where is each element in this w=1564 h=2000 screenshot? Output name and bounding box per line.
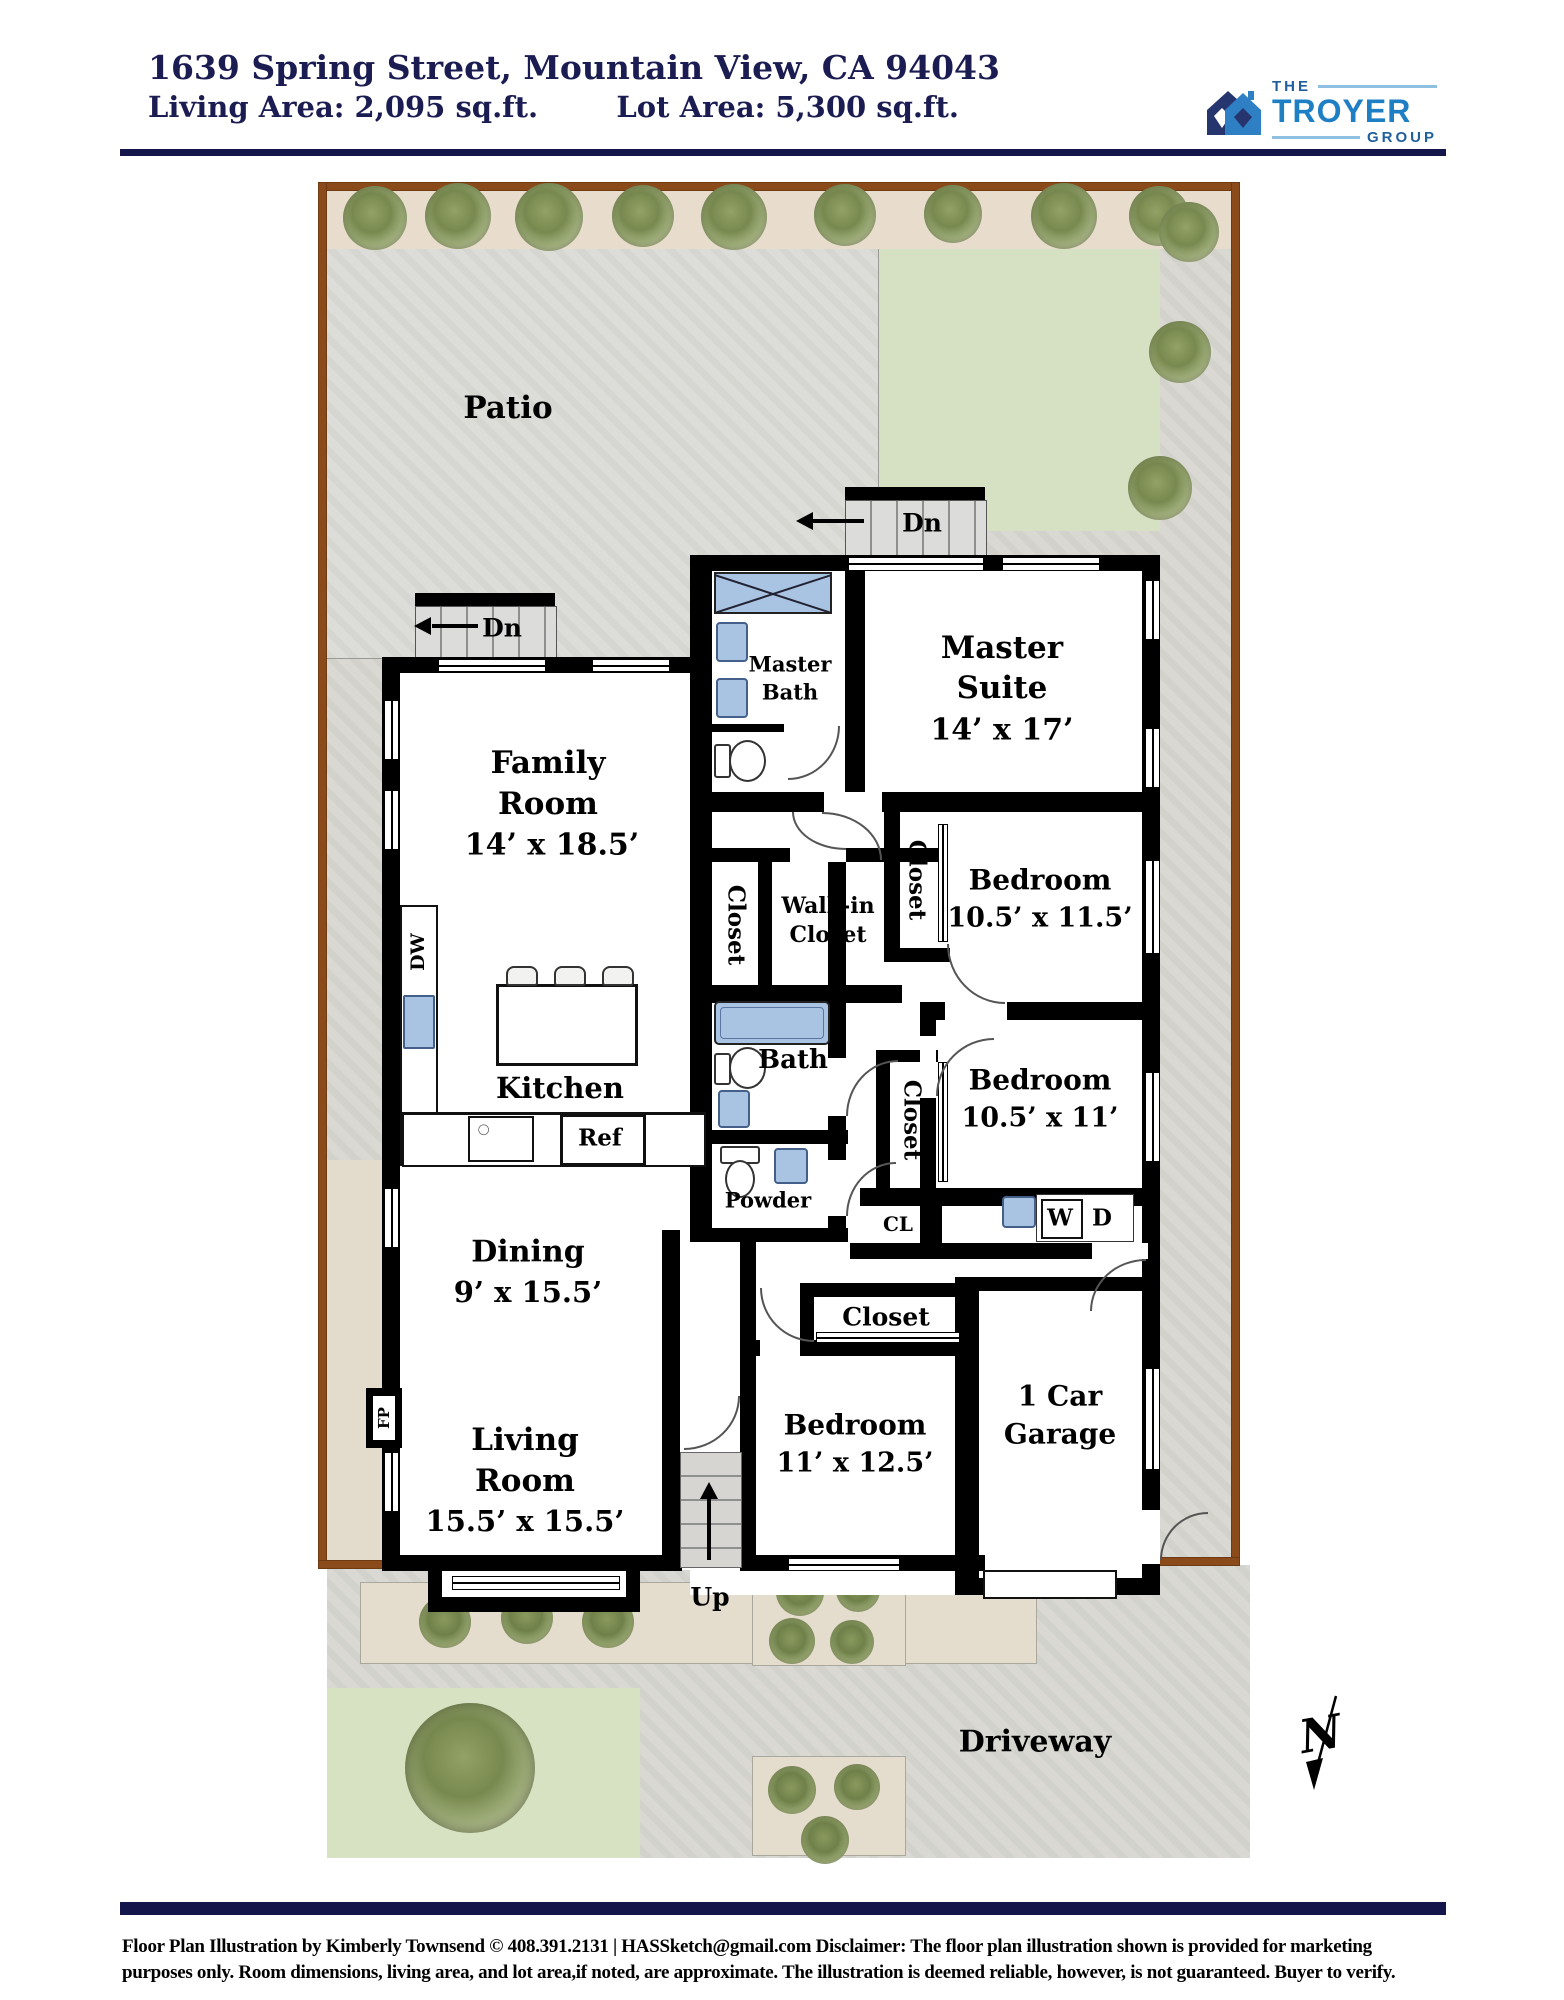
bay-window [452, 1576, 620, 1590]
door-opening [828, 1160, 846, 1216]
window [1145, 1368, 1160, 1470]
lot-area-label: Lot Area: 5,300 sq.ft. [616, 90, 959, 124]
bush [801, 1816, 849, 1864]
bedroom1-label: Bedroom [969, 864, 1112, 897]
stair-arrow [432, 624, 478, 628]
tree [814, 184, 876, 246]
footer-line2: purposes only. Room dimensions, living a… [122, 1962, 1452, 1984]
area-subtitle: Living Area: 2,095 sq.ft. Lot Area: 5,30… [148, 90, 959, 124]
bathtub [714, 1001, 830, 1045]
dining-dims: 9’ x 15.5’ [454, 1275, 602, 1309]
stair-wall [415, 593, 555, 606]
tree [1149, 321, 1211, 383]
walkin-closet-label2: Closet [789, 922, 866, 948]
closet4-label: Closet [842, 1303, 930, 1332]
master-bath-label: Master [749, 652, 832, 677]
window [384, 700, 399, 760]
door-opening [828, 1058, 846, 1116]
north-arrow: N [1290, 1692, 1368, 1800]
logo-troyer: TROYER [1272, 95, 1437, 129]
footer-line1: Floor Plan Illustration by Kimberly Town… [122, 1936, 1452, 1958]
stairs-dn-label: Dn [902, 509, 942, 538]
tree [1128, 456, 1192, 520]
kitchen-label: Kitchen [496, 1071, 624, 1105]
window [1145, 1072, 1160, 1162]
bedroom2-dims: 10.5’ x 11’ [961, 1103, 1118, 1134]
bush [834, 1764, 880, 1810]
closet-shelf [816, 1332, 960, 1343]
window [384, 790, 399, 850]
wall [740, 1230, 756, 1556]
range [468, 1116, 534, 1162]
lot-line-left [318, 182, 327, 1569]
window [384, 1452, 399, 1512]
closet-label: Closet [899, 1080, 926, 1161]
garage-label: 1 Car [1018, 1380, 1102, 1413]
kitchen-counter-bottom [402, 1112, 706, 1167]
wall [690, 1228, 848, 1242]
up-arrow-head [700, 1482, 718, 1499]
bedroom2-label: Bedroom [969, 1064, 1112, 1097]
family-room-dims: 14’ x 18.5’ [465, 828, 639, 863]
tree [515, 183, 583, 251]
wall [884, 948, 950, 962]
dining-label: Dining [471, 1235, 584, 1270]
living-room-label2: Room [475, 1463, 575, 1499]
stair-wall [845, 487, 985, 500]
svg-text:N: N [1293, 1703, 1348, 1764]
bay-wall [428, 1597, 640, 1612]
tree [343, 186, 407, 250]
laundry-sink [1002, 1196, 1036, 1228]
entry-steps [680, 1452, 742, 1568]
island-stool [554, 966, 586, 986]
sink [774, 1148, 808, 1184]
window [848, 557, 984, 571]
lot-line-right [1231, 182, 1240, 1566]
window [788, 1558, 900, 1571]
window [1145, 860, 1160, 954]
page-title: 1639 Spring Street, Mountain View, CA 94… [148, 48, 1000, 87]
wall [690, 812, 712, 1242]
tree [612, 185, 674, 247]
patio-label: Patio [463, 390, 552, 426]
bedroom1-dims: 10.5’ x 11.5’ [947, 903, 1132, 934]
tree [425, 183, 491, 249]
bush [769, 1618, 815, 1664]
wall [690, 555, 712, 815]
wall [758, 862, 772, 992]
tree [924, 185, 982, 243]
tree-front-yard [405, 1703, 535, 1833]
sink [718, 1090, 750, 1128]
door-opening [1142, 1510, 1160, 1564]
master-suite-dims: 14’ x 17’ [930, 713, 1073, 748]
logo-rule-bottom [1272, 136, 1360, 139]
logo-rule-top [1318, 85, 1437, 88]
washer-label: W [1047, 1205, 1073, 1232]
tree [701, 184, 767, 250]
dishwasher-label: DW [407, 933, 429, 971]
wall [928, 1206, 942, 1246]
stairs-dn-label: Dn [482, 614, 522, 643]
bush [768, 1766, 816, 1814]
dishwasher [403, 995, 435, 1049]
wall [884, 812, 900, 962]
garage-label2: Garage [1004, 1418, 1116, 1451]
floor-plan-page: 1639 Spring Street, Mountain View, CA 94… [0, 0, 1564, 2000]
stairs-up-label: Up [690, 1583, 729, 1612]
toilet-bowl [729, 740, 766, 782]
wall [690, 1130, 848, 1144]
family-room-label: Family [491, 745, 606, 781]
side-yard-left [327, 1160, 382, 1565]
door-opening [824, 792, 882, 812]
shower [714, 572, 832, 614]
window [1002, 557, 1100, 571]
bush [830, 1620, 874, 1664]
driveway-label: Driveway [959, 1725, 1111, 1760]
refrigerator-label: Ref [578, 1125, 622, 1152]
wall [955, 1277, 979, 1595]
closet-label: Closet [904, 840, 931, 921]
window [592, 659, 670, 672]
living-room-label: Living [471, 1422, 579, 1458]
logo-group: GROUP [1367, 129, 1437, 146]
family-room-label2: Room [498, 786, 598, 822]
sink [716, 678, 748, 718]
garage-door [983, 1570, 1117, 1599]
stair-arrow [812, 519, 864, 523]
dryer-label: D [1092, 1205, 1112, 1232]
bedroom3-dims: 11’ x 12.5’ [776, 1448, 933, 1479]
master-suite-label: Master [941, 630, 1063, 666]
troyer-group-logo: THE TROYER GROUP [1200, 70, 1445, 154]
cl-label: CL [883, 1212, 913, 1236]
tree [1031, 183, 1097, 249]
window [1145, 728, 1160, 788]
living-area-label: Living Area: 2,095 sq.ft. [148, 90, 538, 124]
master-suite-label2: Suite [957, 670, 1048, 706]
wall [690, 792, 1160, 812]
wall [845, 555, 865, 810]
door-opening [945, 1002, 1007, 1020]
logo-house-icon [1204, 82, 1264, 140]
tree [1159, 202, 1219, 262]
bedroom3-label: Bedroom [784, 1409, 927, 1442]
footer-divider [120, 1902, 1446, 1915]
closet-label: Closet [723, 885, 750, 966]
window [1145, 580, 1160, 640]
sink [716, 622, 748, 662]
wall [800, 1283, 965, 1297]
wall [712, 724, 784, 732]
master-bath-label2: Bath [762, 680, 818, 705]
bath-label: Bath [758, 1045, 828, 1075]
island-stool [602, 966, 634, 986]
stair-arrow-head [414, 617, 431, 635]
window [384, 1188, 399, 1248]
door-opening [1092, 1243, 1148, 1259]
kitchen-island [496, 984, 638, 1066]
stair-arrow-head [796, 512, 813, 530]
up-arrow [707, 1498, 711, 1560]
powder-label: Powder [725, 1188, 811, 1213]
wall [662, 1230, 680, 1570]
window [438, 659, 546, 672]
fireplace-label: FP [375, 1407, 393, 1429]
living-room-dims: 15.5’ x 15.5’ [426, 1504, 625, 1538]
island-stool [506, 966, 538, 986]
walkin-closet-label: Walk-in [781, 893, 874, 919]
